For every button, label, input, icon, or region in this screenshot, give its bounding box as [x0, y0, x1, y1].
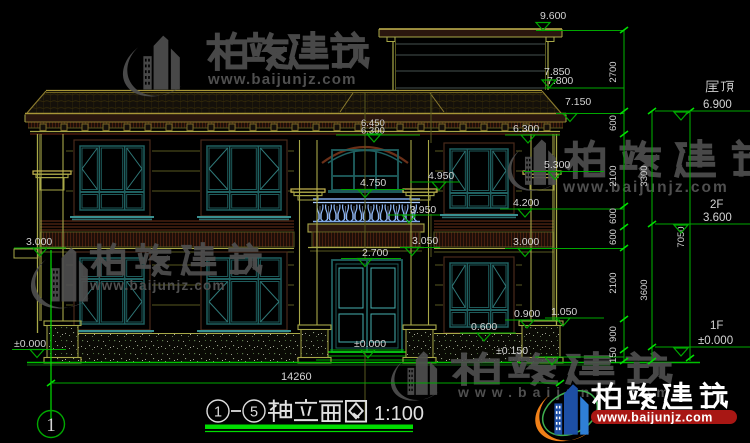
svg-text:2100: 2100: [608, 165, 619, 186]
svg-text:3.050: 3.050: [412, 235, 438, 247]
svg-text:5: 5: [250, 405, 258, 421]
svg-text:1:100: 1:100: [374, 403, 424, 425]
svg-text:5.300: 5.300: [544, 159, 570, 171]
svg-text:7.150: 7.150: [565, 96, 591, 108]
svg-text:4.950: 4.950: [428, 170, 454, 182]
svg-text:14260: 14260: [281, 371, 312, 383]
svg-text:www.baijunjz.com: www.baijunjz.com: [596, 411, 713, 425]
svg-text:6.300: 6.300: [513, 123, 539, 135]
svg-text:2.700: 2.700: [362, 247, 388, 259]
svg-text:3.600: 3.600: [703, 212, 732, 224]
svg-text:www.baijunjz.com: www.baijunjz.com: [89, 278, 226, 293]
svg-text:3.000: 3.000: [513, 236, 539, 248]
svg-text:2700: 2700: [608, 61, 619, 82]
svg-text:4.200: 4.200: [513, 197, 539, 209]
svg-text:4.750: 4.750: [360, 177, 386, 189]
svg-text:900: 900: [608, 326, 619, 342]
svg-text:150: 150: [608, 347, 619, 363]
svg-text:±0.000: ±0.000: [354, 338, 386, 350]
svg-text:1: 1: [214, 405, 222, 421]
svg-text:±0.000: ±0.000: [698, 335, 733, 347]
svg-text:www.baijunjz.com: www.baijunjz.com: [207, 71, 357, 88]
svg-text:3300: 3300: [639, 165, 650, 186]
svg-text:±0.150: ±0.150: [496, 345, 528, 357]
svg-text:3.950: 3.950: [410, 204, 436, 216]
svg-text:3.000: 3.000: [26, 236, 52, 248]
svg-text:1.050: 1.050: [551, 306, 577, 318]
svg-text:0.900: 0.900: [514, 308, 540, 320]
svg-text:6.900: 6.900: [703, 99, 732, 111]
svg-text:600: 600: [608, 115, 619, 131]
svg-text:±0.000: ±0.000: [14, 338, 46, 350]
svg-text:2100: 2100: [608, 272, 619, 293]
svg-text:3600: 3600: [639, 279, 650, 300]
svg-text:600: 600: [608, 229, 619, 245]
svg-text:0.600: 0.600: [471, 321, 497, 333]
svg-text:2F: 2F: [710, 199, 723, 211]
svg-text:1F: 1F: [710, 320, 723, 332]
svg-text:1: 1: [46, 415, 56, 436]
svg-text:600: 600: [608, 208, 619, 224]
svg-text:9.600: 9.600: [540, 10, 566, 22]
